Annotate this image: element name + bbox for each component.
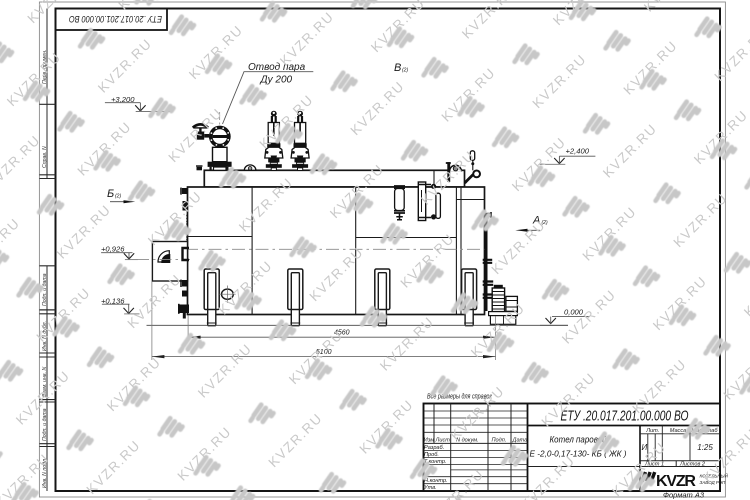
svg-text:Разраб.: Разраб. xyxy=(424,445,444,451)
svg-text:Дата: Дата xyxy=(512,437,528,443)
svg-text:(2): (2) xyxy=(402,68,408,74)
svg-text:Формат А3: Формат А3 xyxy=(663,491,705,500)
svg-text:Справ. N: Справ. N xyxy=(42,146,48,168)
svg-text:Е -2,0-0,17-130- КБ ( ЖК ): Е -2,0-0,17-130- КБ ( ЖК ) xyxy=(530,449,627,459)
svg-text:ЕТУ .20.017.201.00.000 ВО: ЕТУ .20.017.201.00.000 ВО xyxy=(69,14,162,24)
svg-text:Проб.: Проб. xyxy=(424,452,439,458)
svg-text:Лит.: Лит. xyxy=(645,428,659,434)
svg-text:Подп.: Подп. xyxy=(492,437,507,443)
svg-text:ЕТУ .20.017.201.00.000 ВО: ЕТУ .20.017.201.00.000 ВО xyxy=(561,409,689,425)
svg-text:Листов 2: Листов 2 xyxy=(679,461,706,467)
svg-text:Б: Б xyxy=(107,188,114,200)
svg-text:1:25: 1:25 xyxy=(697,443,713,452)
svg-text:(2): (2) xyxy=(115,194,121,200)
svg-text:+2,400: +2,400 xyxy=(566,147,590,156)
svg-text:Лист: Лист xyxy=(435,437,451,443)
svg-text:Утв.: Утв. xyxy=(423,485,437,491)
svg-text:Подп. и дата: Подп. и дата xyxy=(42,408,48,441)
svg-text:Изм: Изм xyxy=(424,437,435,443)
svg-text:В: В xyxy=(394,62,401,74)
svg-text:Ду 200: Ду 200 xyxy=(260,75,293,86)
svg-text:+0,926: +0,926 xyxy=(101,245,125,254)
svg-text:Масса: Масса xyxy=(670,428,687,434)
svg-text:KVZR: KVZR xyxy=(656,473,696,490)
svg-text:Н.контр.: Н.контр. xyxy=(424,478,448,484)
